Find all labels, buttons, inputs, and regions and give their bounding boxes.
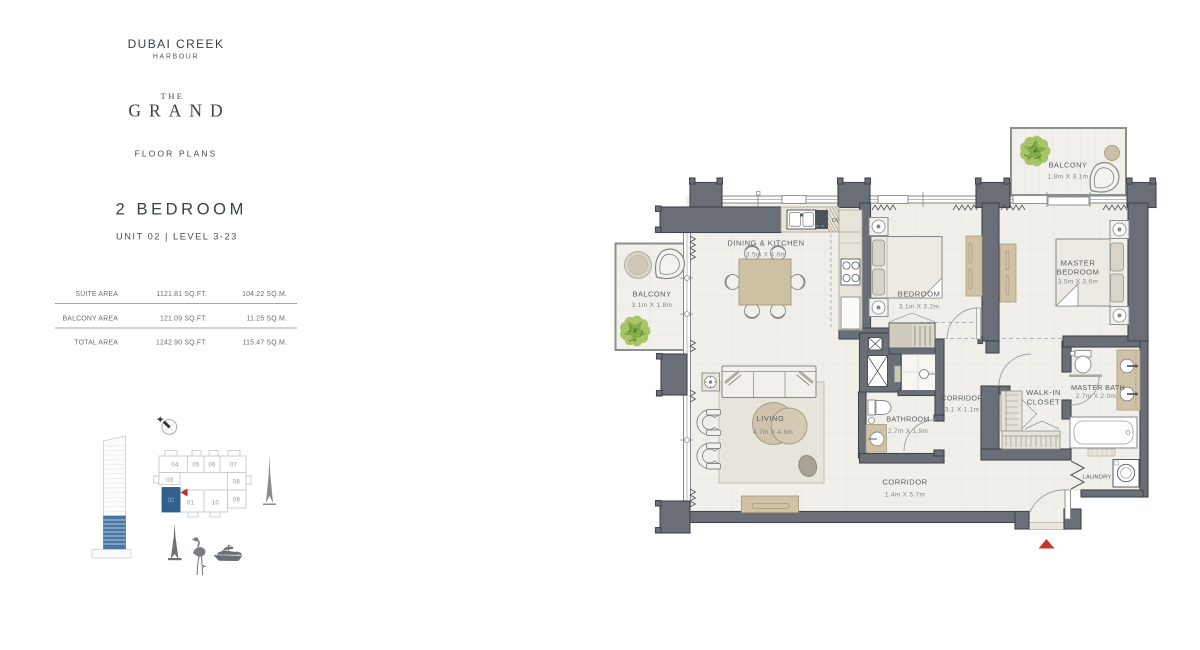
svg-text:3.1m X 3.2m: 3.1m X 3.2m — [899, 304, 939, 311]
svg-text:GRAND: GRAND — [128, 101, 230, 121]
svg-text:CORRIDOR: CORRIDOR — [941, 394, 983, 403]
svg-text:UNIT 02 | LEVEL 3-23: UNIT 02 | LEVEL 3-23 — [116, 232, 238, 242]
svg-text:02: 02 — [168, 498, 175, 504]
svg-text:11.25 SQ.M.: 11.25 SQ.M. — [247, 316, 287, 323]
svg-text:HARBOUR: HARBOUR — [153, 54, 199, 61]
svg-text:1.4m X 5.7m: 1.4m X 5.7m — [885, 492, 925, 499]
svg-text:BATHROOM: BATHROOM — [886, 415, 929, 424]
svg-text:THE: THE — [161, 91, 185, 101]
svg-text:3.1 X 1.1m: 3.1 X 1.1m — [945, 407, 979, 414]
svg-text:DUBAI CREEK: DUBAI CREEK — [128, 37, 225, 51]
svg-text:WALK-IN: WALK-IN — [1026, 388, 1061, 397]
svg-text:BALCONY: BALCONY — [633, 290, 672, 299]
svg-text:BEDROOM: BEDROOM — [1057, 268, 1100, 277]
svg-text:1121.81 SQ.FT.: 1121.81 SQ.FT. — [156, 291, 207, 298]
svg-text:2 BEDROOM: 2 BEDROOM — [116, 201, 247, 219]
svg-text:SUITE AREA: SUITE AREA — [75, 291, 118, 298]
svg-text:BALCONY AREA: BALCONY AREA — [62, 316, 118, 323]
svg-text:09: 09 — [233, 498, 241, 504]
svg-text:08: 08 — [233, 480, 241, 486]
svg-text:TOTAL AREA: TOTAL AREA — [74, 340, 118, 347]
svg-text:05: 05 — [192, 463, 200, 469]
svg-text:3.1m X 1.8m: 3.1m X 1.8m — [632, 302, 673, 309]
svg-text:10: 10 — [212, 501, 220, 507]
svg-text:LAUNDRY: LAUNDRY — [1083, 475, 1112, 481]
svg-text:LIVING: LIVING — [757, 414, 785, 423]
svg-text:3.5m X 3.6m: 3.5m X 3.6m — [1058, 279, 1098, 286]
svg-text:BEDROOM: BEDROOM — [898, 290, 941, 299]
svg-text:06: 06 — [208, 463, 216, 469]
svg-text:03: 03 — [166, 478, 174, 484]
svg-text:3.5m X 4.6m: 3.5m X 4.6m — [746, 252, 786, 259]
svg-text:CLOSET: CLOSET — [1027, 398, 1060, 407]
svg-text:MASTER BATH: MASTER BATH — [1071, 383, 1125, 392]
svg-text:121.09 SQ.FT.: 121.09 SQ.FT. — [160, 316, 207, 323]
svg-text:07: 07 — [230, 463, 238, 469]
svg-text:FLOOR PLANS: FLOOR PLANS — [135, 149, 218, 159]
svg-text:115.47 SQ.M.: 115.47 SQ.M. — [243, 340, 287, 347]
svg-text:2.7m X 2.0m: 2.7m X 2.0m — [1076, 393, 1116, 400]
svg-text:1242.90 SQ.FT.: 1242.90 SQ.FT. — [156, 340, 207, 347]
svg-text:4.7m X 4.6m: 4.7m X 4.6m — [753, 429, 793, 436]
svg-text:1.8m X 3.1m: 1.8m X 3.1m — [1048, 174, 1089, 181]
svg-text:01: 01 — [187, 501, 195, 507]
svg-text:MASTER: MASTER — [1061, 259, 1096, 268]
svg-text:104.22 SQ.M.: 104.22 SQ.M. — [242, 291, 287, 298]
svg-text:CORRIDOR: CORRIDOR — [882, 478, 927, 487]
svg-text:DINING & KITCHEN: DINING & KITCHEN — [727, 239, 804, 248]
svg-text:2.7m X 1.9m: 2.7m X 1.9m — [888, 428, 928, 435]
svg-text:04: 04 — [171, 463, 179, 469]
svg-text:BALCONY: BALCONY — [1049, 161, 1088, 170]
